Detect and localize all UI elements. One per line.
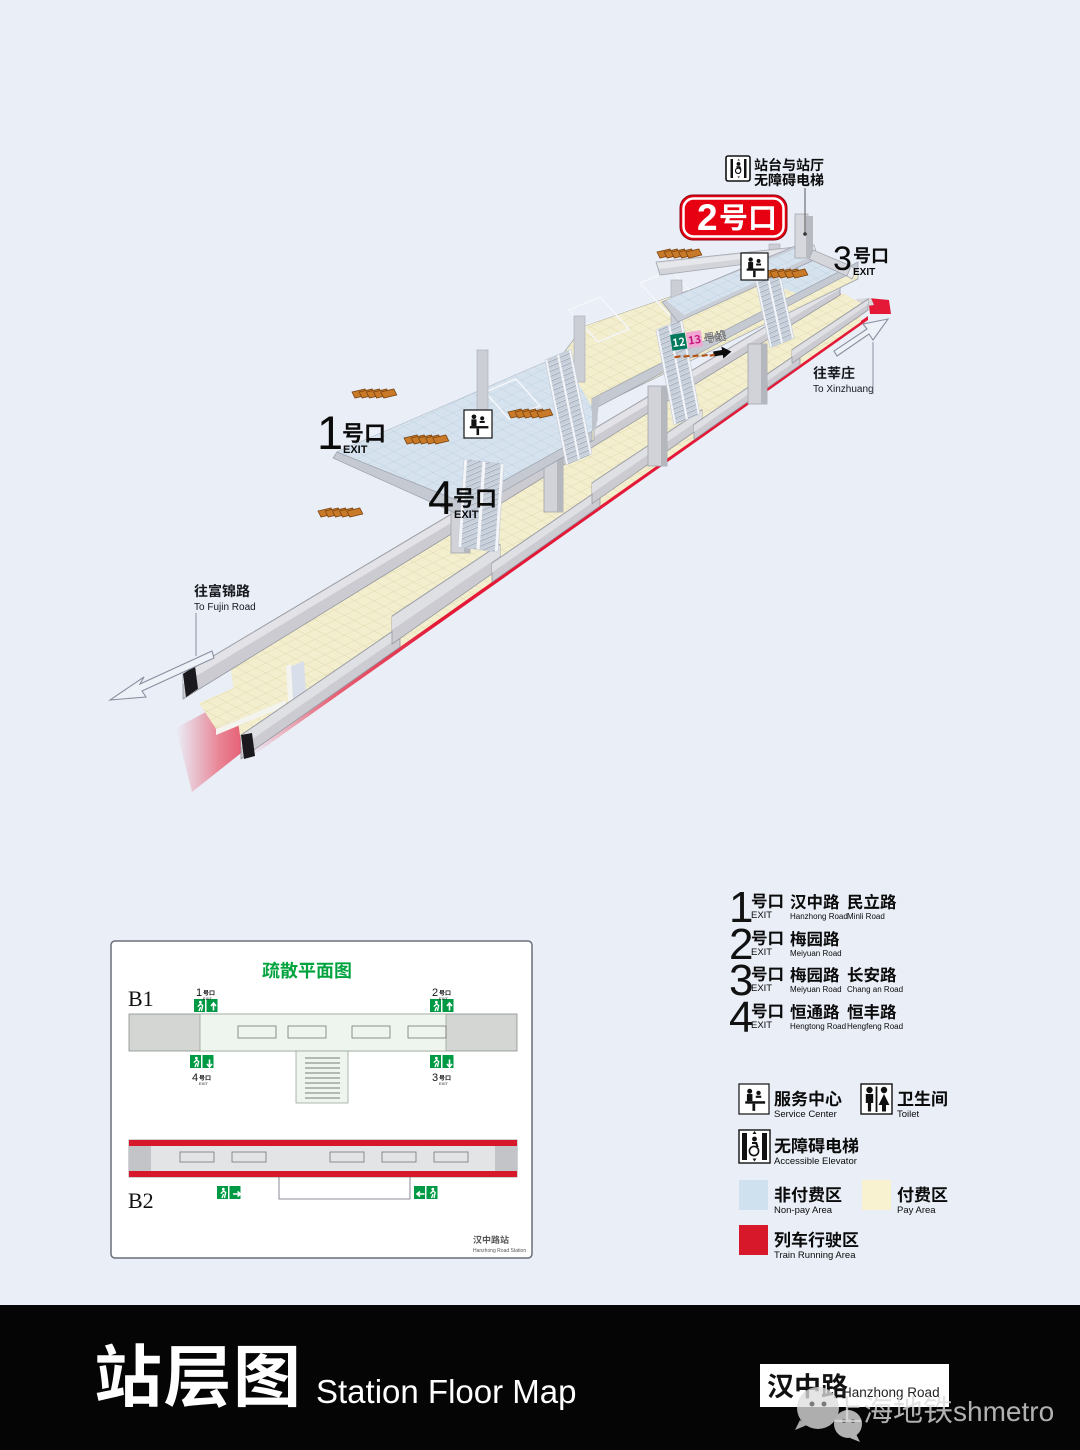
- svg-text:Meiyuan Road: Meiyuan Road: [790, 949, 842, 958]
- svg-text:Toilet: Toilet: [897, 1109, 920, 1120]
- svg-text:EXIT: EXIT: [751, 947, 772, 958]
- svg-text:EXIT: EXIT: [343, 444, 368, 456]
- svg-text:2: 2: [697, 197, 718, 238]
- svg-text:3: 3: [432, 1072, 438, 1084]
- svg-text:Pay Area: Pay Area: [897, 1205, 936, 1216]
- svg-text:Station Floor Map: Station Floor Map: [316, 1373, 576, 1410]
- svg-text:4: 4: [729, 993, 753, 1042]
- svg-text:B1: B1: [128, 986, 154, 1011]
- svg-text:3: 3: [833, 240, 852, 278]
- svg-text:1: 1: [196, 987, 202, 999]
- svg-text:Accessible Elevator: Accessible Elevator: [774, 1156, 857, 1167]
- svg-text:B2: B2: [128, 1188, 154, 1213]
- svg-text:EXIT: EXIT: [454, 509, 479, 521]
- svg-text:Chang an Road: Chang an Road: [847, 985, 903, 994]
- svg-text:EXIT: EXIT: [853, 267, 875, 278]
- svg-text:EXIT: EXIT: [199, 1081, 208, 1086]
- svg-text:Hanzhong Road Station: Hanzhong Road Station: [473, 1248, 526, 1254]
- svg-text:Hanzhong Road: Hanzhong Road: [842, 1385, 940, 1400]
- svg-text:EXIT: EXIT: [751, 910, 772, 921]
- svg-text:EXIT: EXIT: [751, 1020, 772, 1031]
- svg-text:Hengtong Road: Hengtong Road: [790, 1022, 846, 1031]
- svg-text:EXIT: EXIT: [439, 996, 448, 1001]
- svg-text:shmetro: shmetro: [953, 1396, 1054, 1427]
- svg-text:Meiyuan Road: Meiyuan Road: [790, 985, 842, 994]
- svg-text:4: 4: [192, 1072, 198, 1084]
- svg-text:4: 4: [428, 471, 454, 524]
- svg-text:EXIT: EXIT: [751, 983, 772, 994]
- svg-text:Train Running Area: Train Running Area: [774, 1250, 856, 1261]
- svg-text:To Fujin Road: To Fujin Road: [194, 602, 256, 613]
- svg-text:2: 2: [432, 987, 438, 999]
- svg-text:Hengfeng Road: Hengfeng Road: [847, 1022, 903, 1031]
- svg-text:Minli Road: Minli Road: [847, 912, 885, 921]
- svg-text:Service Center: Service Center: [774, 1109, 837, 1120]
- svg-text:Non-pay Area: Non-pay Area: [774, 1205, 833, 1216]
- svg-text:To Xinzhuang: To Xinzhuang: [813, 384, 874, 395]
- svg-text:Hanzhong Road: Hanzhong Road: [790, 912, 848, 921]
- svg-text:EXIT: EXIT: [439, 1081, 448, 1086]
- svg-text:1: 1: [317, 406, 343, 459]
- svg-text:EXIT: EXIT: [203, 996, 212, 1001]
